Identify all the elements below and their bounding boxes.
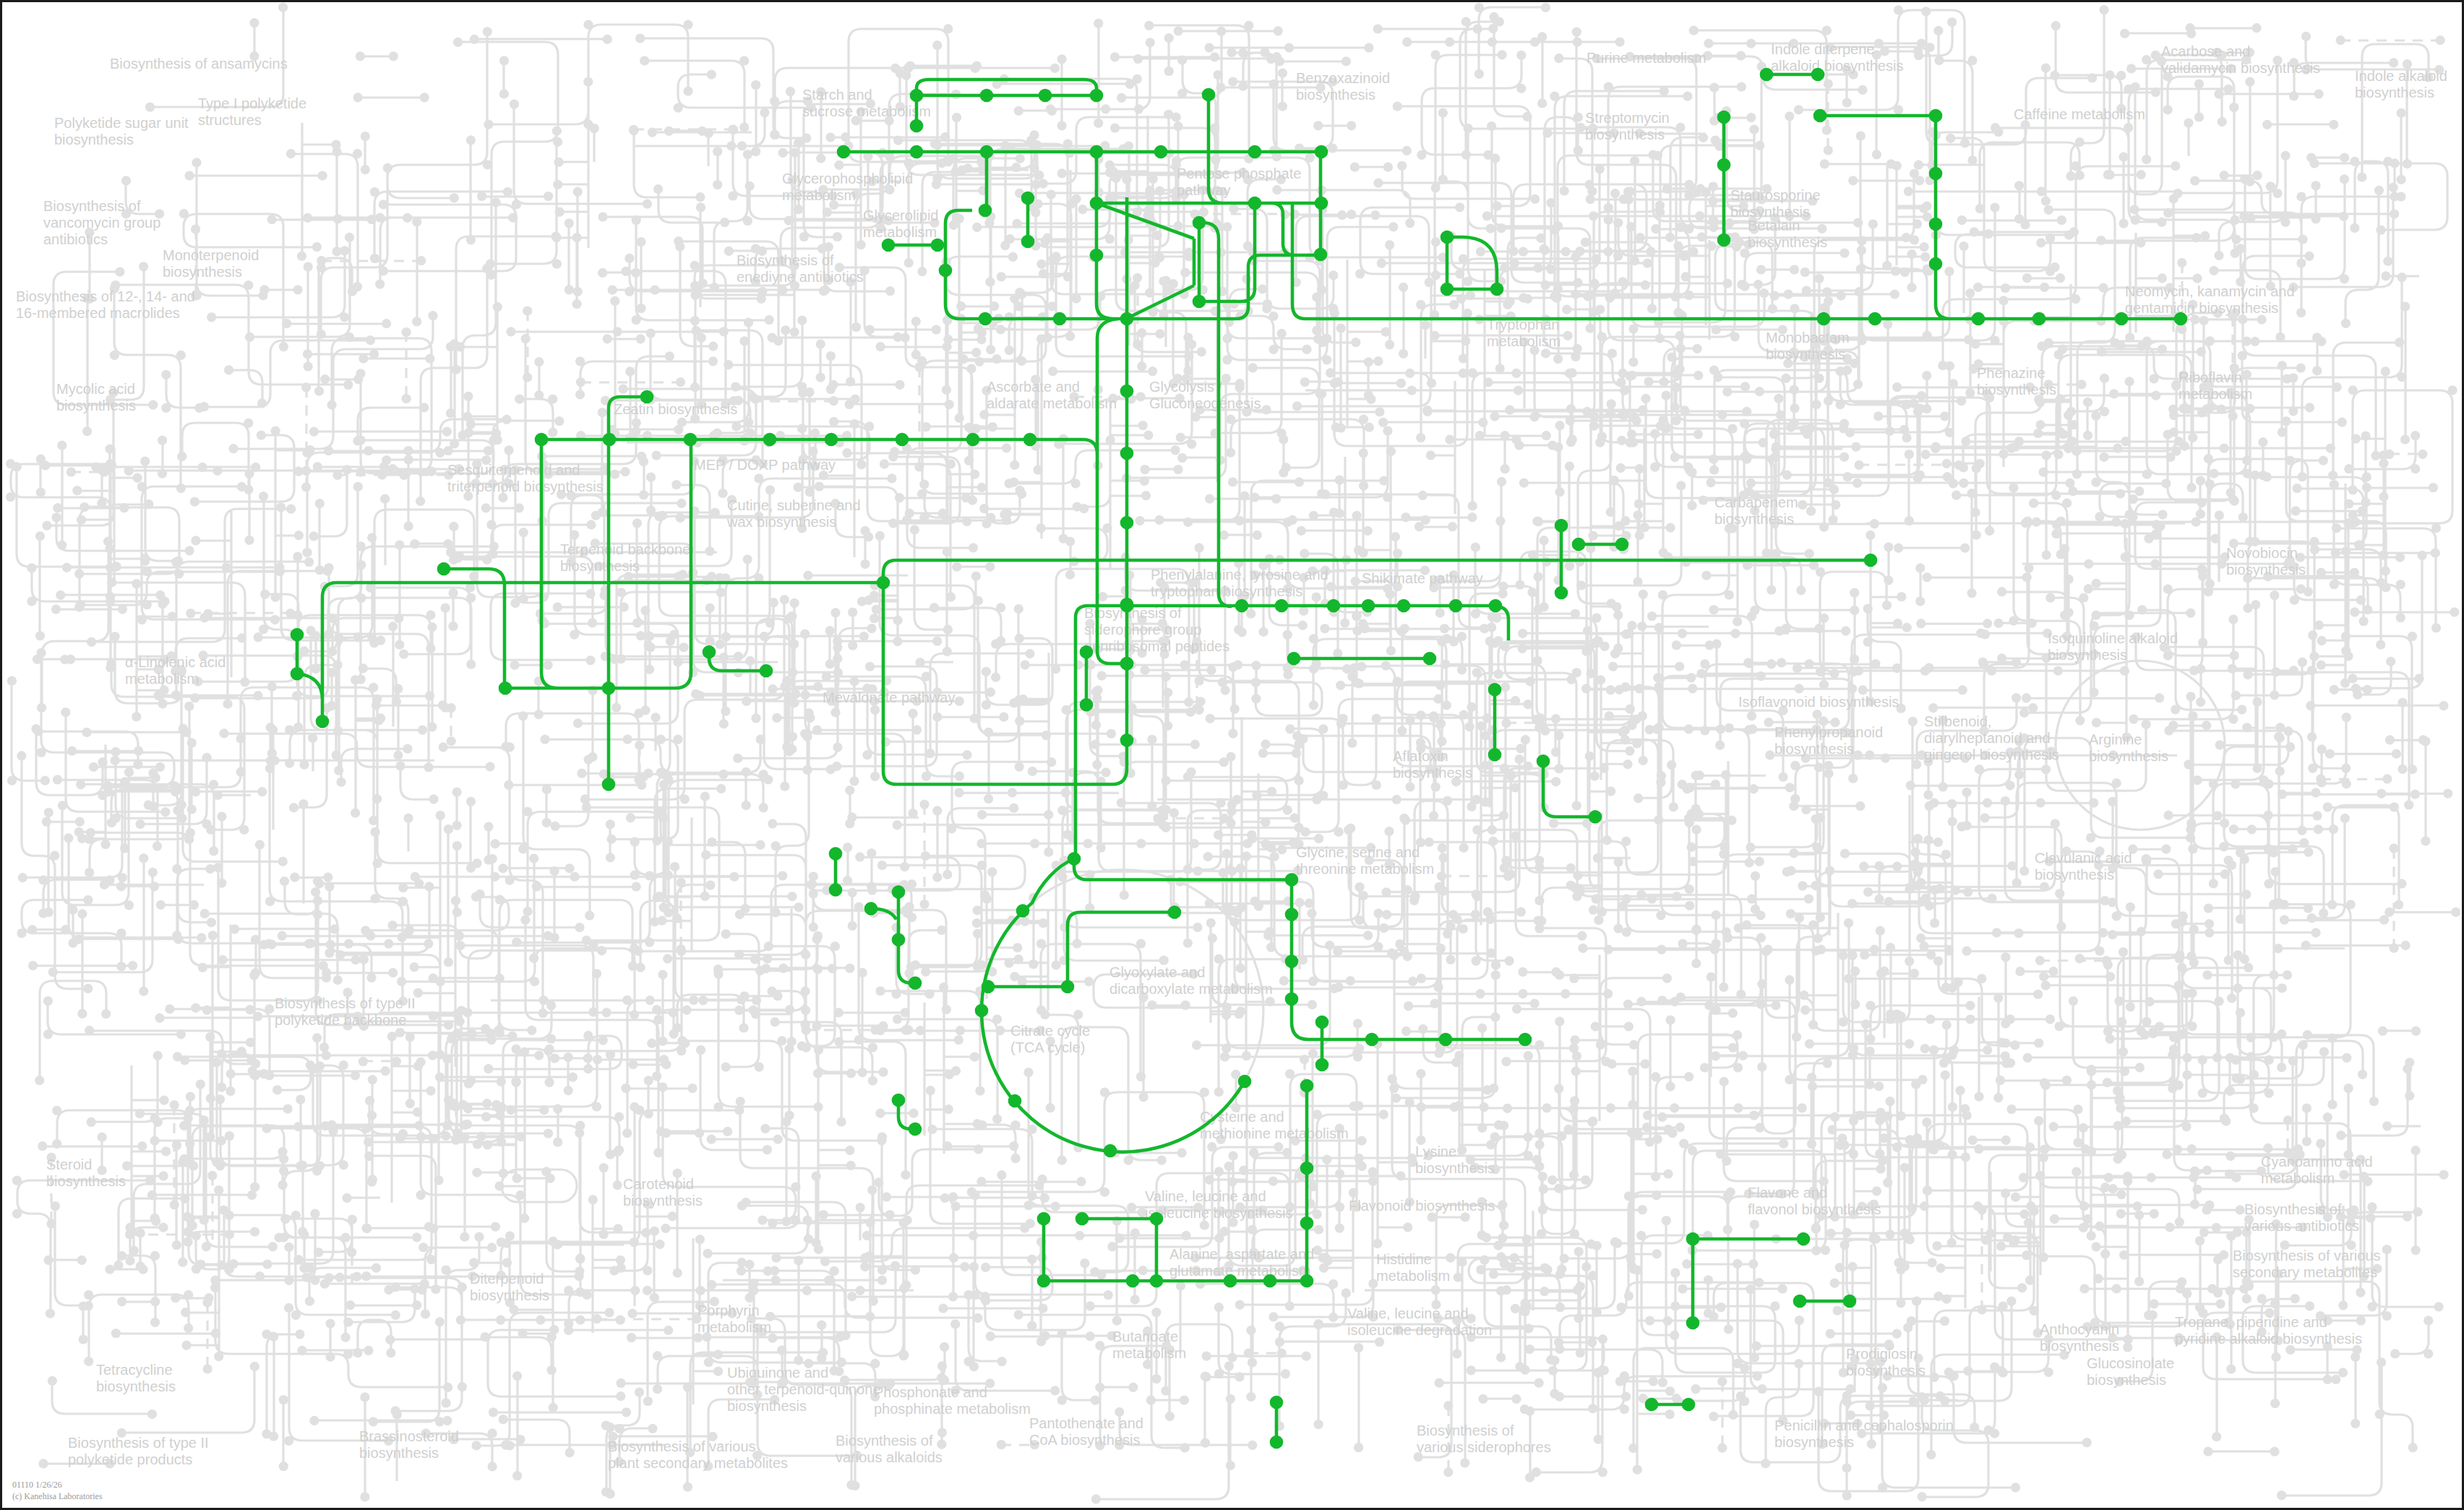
svg-text:Sesquiterpenoid andtriterpenoi: Sesquiterpenoid andtriterpenoid biosynth… [447,462,604,494]
svg-text:Riboflavinmetabolism: Riboflavinmetabolism [2178,369,2252,402]
svg-text:Monobactambiosynthesis: Monobactambiosynthesis [1766,330,1850,362]
svg-text:Tetracyclinebiosynthesis: Tetracyclinebiosynthesis [96,1362,176,1394]
svg-text:Biosynthesis ofvarious alkaloi: Biosynthesis ofvarious alkaloids [836,1433,943,1465]
svg-text:Anthocyaninbiosynthesis: Anthocyaninbiosynthesis [2040,1321,2119,1354]
svg-text:Phenylalanine, tyrosine andtry: Phenylalanine, tyrosine andtryptophan bi… [1151,567,1328,599]
svg-text:Streptomycinbiosynthesis: Streptomycinbiosynthesis [1585,110,1670,142]
svg-text:Citrate cycle(TCA cycle): Citrate cycle(TCA cycle) [1010,1023,1090,1055]
svg-text:Biosynthesis of ansamycins: Biosynthesis of ansamycins [110,56,288,72]
svg-text:Prodigiosinbiosynthesis: Prodigiosinbiosynthesis [1846,1346,1926,1378]
svg-text:Tryptophanmetabolism: Tryptophanmetabolism [1487,317,1561,349]
svg-text:Alanine, aspartate andglutamat: Alanine, aspartate andglutamate metaboli… [1169,1246,1314,1279]
svg-text:01110 1/26/26: 01110 1/26/26 [12,1480,62,1490]
svg-text:Shikimate pathway: Shikimate pathway [1362,570,1483,586]
svg-text:Carotenoidbiosynthesis: Carotenoidbiosynthesis [623,1176,703,1209]
svg-text:(c) Kanehisa Laboratories: (c) Kanehisa Laboratories [12,1491,103,1501]
svg-text:Glycine, serine andthreonine m: Glycine, serine andthreonine metabolism [1296,844,1434,877]
svg-text:Mevalonate pathway: Mevalonate pathway [823,690,955,705]
svg-text:Mycolic acidbiosynthesis: Mycolic acidbiosynthesis [56,381,136,413]
svg-text:Zeatin biosynthesis: Zeatin biosynthesis [614,401,737,417]
svg-text:Glycerolipidmetabolism: Glycerolipidmetabolism [863,207,938,240]
svg-text:Isoflavonoid biosynthesis: Isoflavonoid biosynthesis [1738,694,1899,710]
svg-text:Neomycin, kanamycin andgentami: Neomycin, kanamycin andgentamicin biosyn… [2125,283,2295,316]
svg-text:Biosynthesis of type IIpolyket: Biosynthesis of type IIpolyketide backbo… [275,995,416,1028]
svg-text:Biosynthesis of type IIpolyket: Biosynthesis of type IIpolyketide produc… [68,1435,209,1467]
svg-text:Pantothenate andCoA biosynthes: Pantothenate andCoA biosynthesis [1029,1415,1143,1448]
svg-text:Indole alkaloidbiosynthesis: Indole alkaloidbiosynthesis [2355,68,2447,100]
svg-text:Staurosporinebiosynthesis: Staurosporinebiosynthesis [1730,187,1821,220]
svg-text:Butanoatemetabolism: Butanoatemetabolism [1112,1329,1186,1361]
svg-text:Biosynthesis of variousseconda: Biosynthesis of varioussecondary metabol… [2233,1248,2381,1280]
svg-text:Carbapenembiosynthesis: Carbapenembiosynthesis [1714,494,1798,527]
svg-text:Flavonoid biosynthesis: Flavonoid biosynthesis [1349,1198,1495,1214]
svg-text:Phenazinebiosynthesis: Phenazinebiosynthesis [1977,365,2056,398]
svg-text:MEP / DOXP pathway: MEP / DOXP pathway [694,457,836,473]
svg-text:Glucosinolatebiosynthesis: Glucosinolatebiosynthesis [2087,1355,2174,1388]
svg-text:Caffeine metabolism: Caffeine metabolism [2014,106,2145,122]
svg-text:Purine metabolism: Purine metabolism [1587,50,1707,66]
svg-text:Novobiocinbiosynthesis: Novobiocinbiosynthesis [2226,545,2306,578]
svg-text:Biosynthesis of 12-, 14- and16: Biosynthesis of 12-, 14- and16-membered … [16,288,195,321]
svg-text:Diterpenoidbiosynthesis: Diterpenoidbiosynthesis [470,1271,549,1303]
